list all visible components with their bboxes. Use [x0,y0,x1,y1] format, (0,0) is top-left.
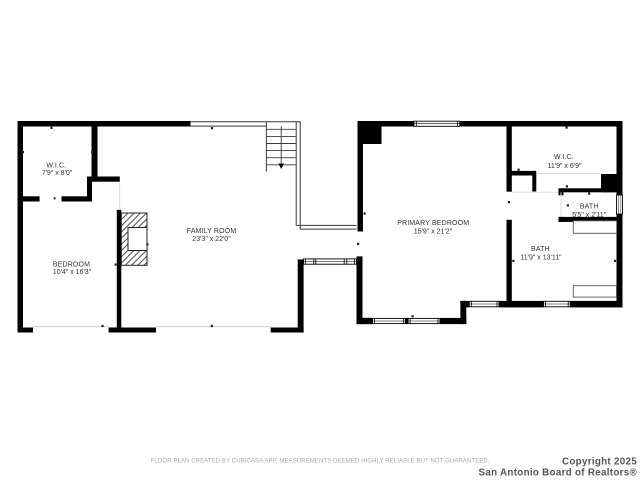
svg-text:W.I.C.: W.I.C. [554,154,574,161]
svg-text:11'9" x 13'11": 11'9" x 13'11" [520,255,562,262]
svg-text:15'9" x 21'2": 15'9" x 21'2" [414,229,453,236]
svg-text:11'9" x 6'9": 11'9" x 6'9" [548,163,582,170]
svg-text:BATH: BATH [531,246,550,253]
svg-text:San Antonio Board of Realtors®: San Antonio Board of Realtors® [479,468,638,479]
svg-text:23'3" x 22'0": 23'3" x 22'0" [192,236,231,243]
svg-text:10'4" x 16'3": 10'4" x 16'3" [53,269,92,276]
svg-text:FLOOR PLAN CREATED BY CUBICASA: FLOOR PLAN CREATED BY CUBICASA APP. MEAS… [150,458,489,464]
svg-text:BEDROOM: BEDROOM [53,261,90,268]
svg-text:W.I.C.: W.I.C. [46,163,66,170]
svg-text:BATH: BATH [580,204,599,211]
svg-text:PRIMARY BEDROOM: PRIMARY BEDROOM [397,220,469,227]
svg-text:FAMILY ROOM: FAMILY ROOM [187,228,237,235]
svg-text:Copyright 2025: Copyright 2025 [562,456,637,467]
svg-text:7'9" x 8'0": 7'9" x 8'0" [42,170,73,177]
svg-text:5'5" x 2'11": 5'5" x 2'11" [572,212,606,219]
